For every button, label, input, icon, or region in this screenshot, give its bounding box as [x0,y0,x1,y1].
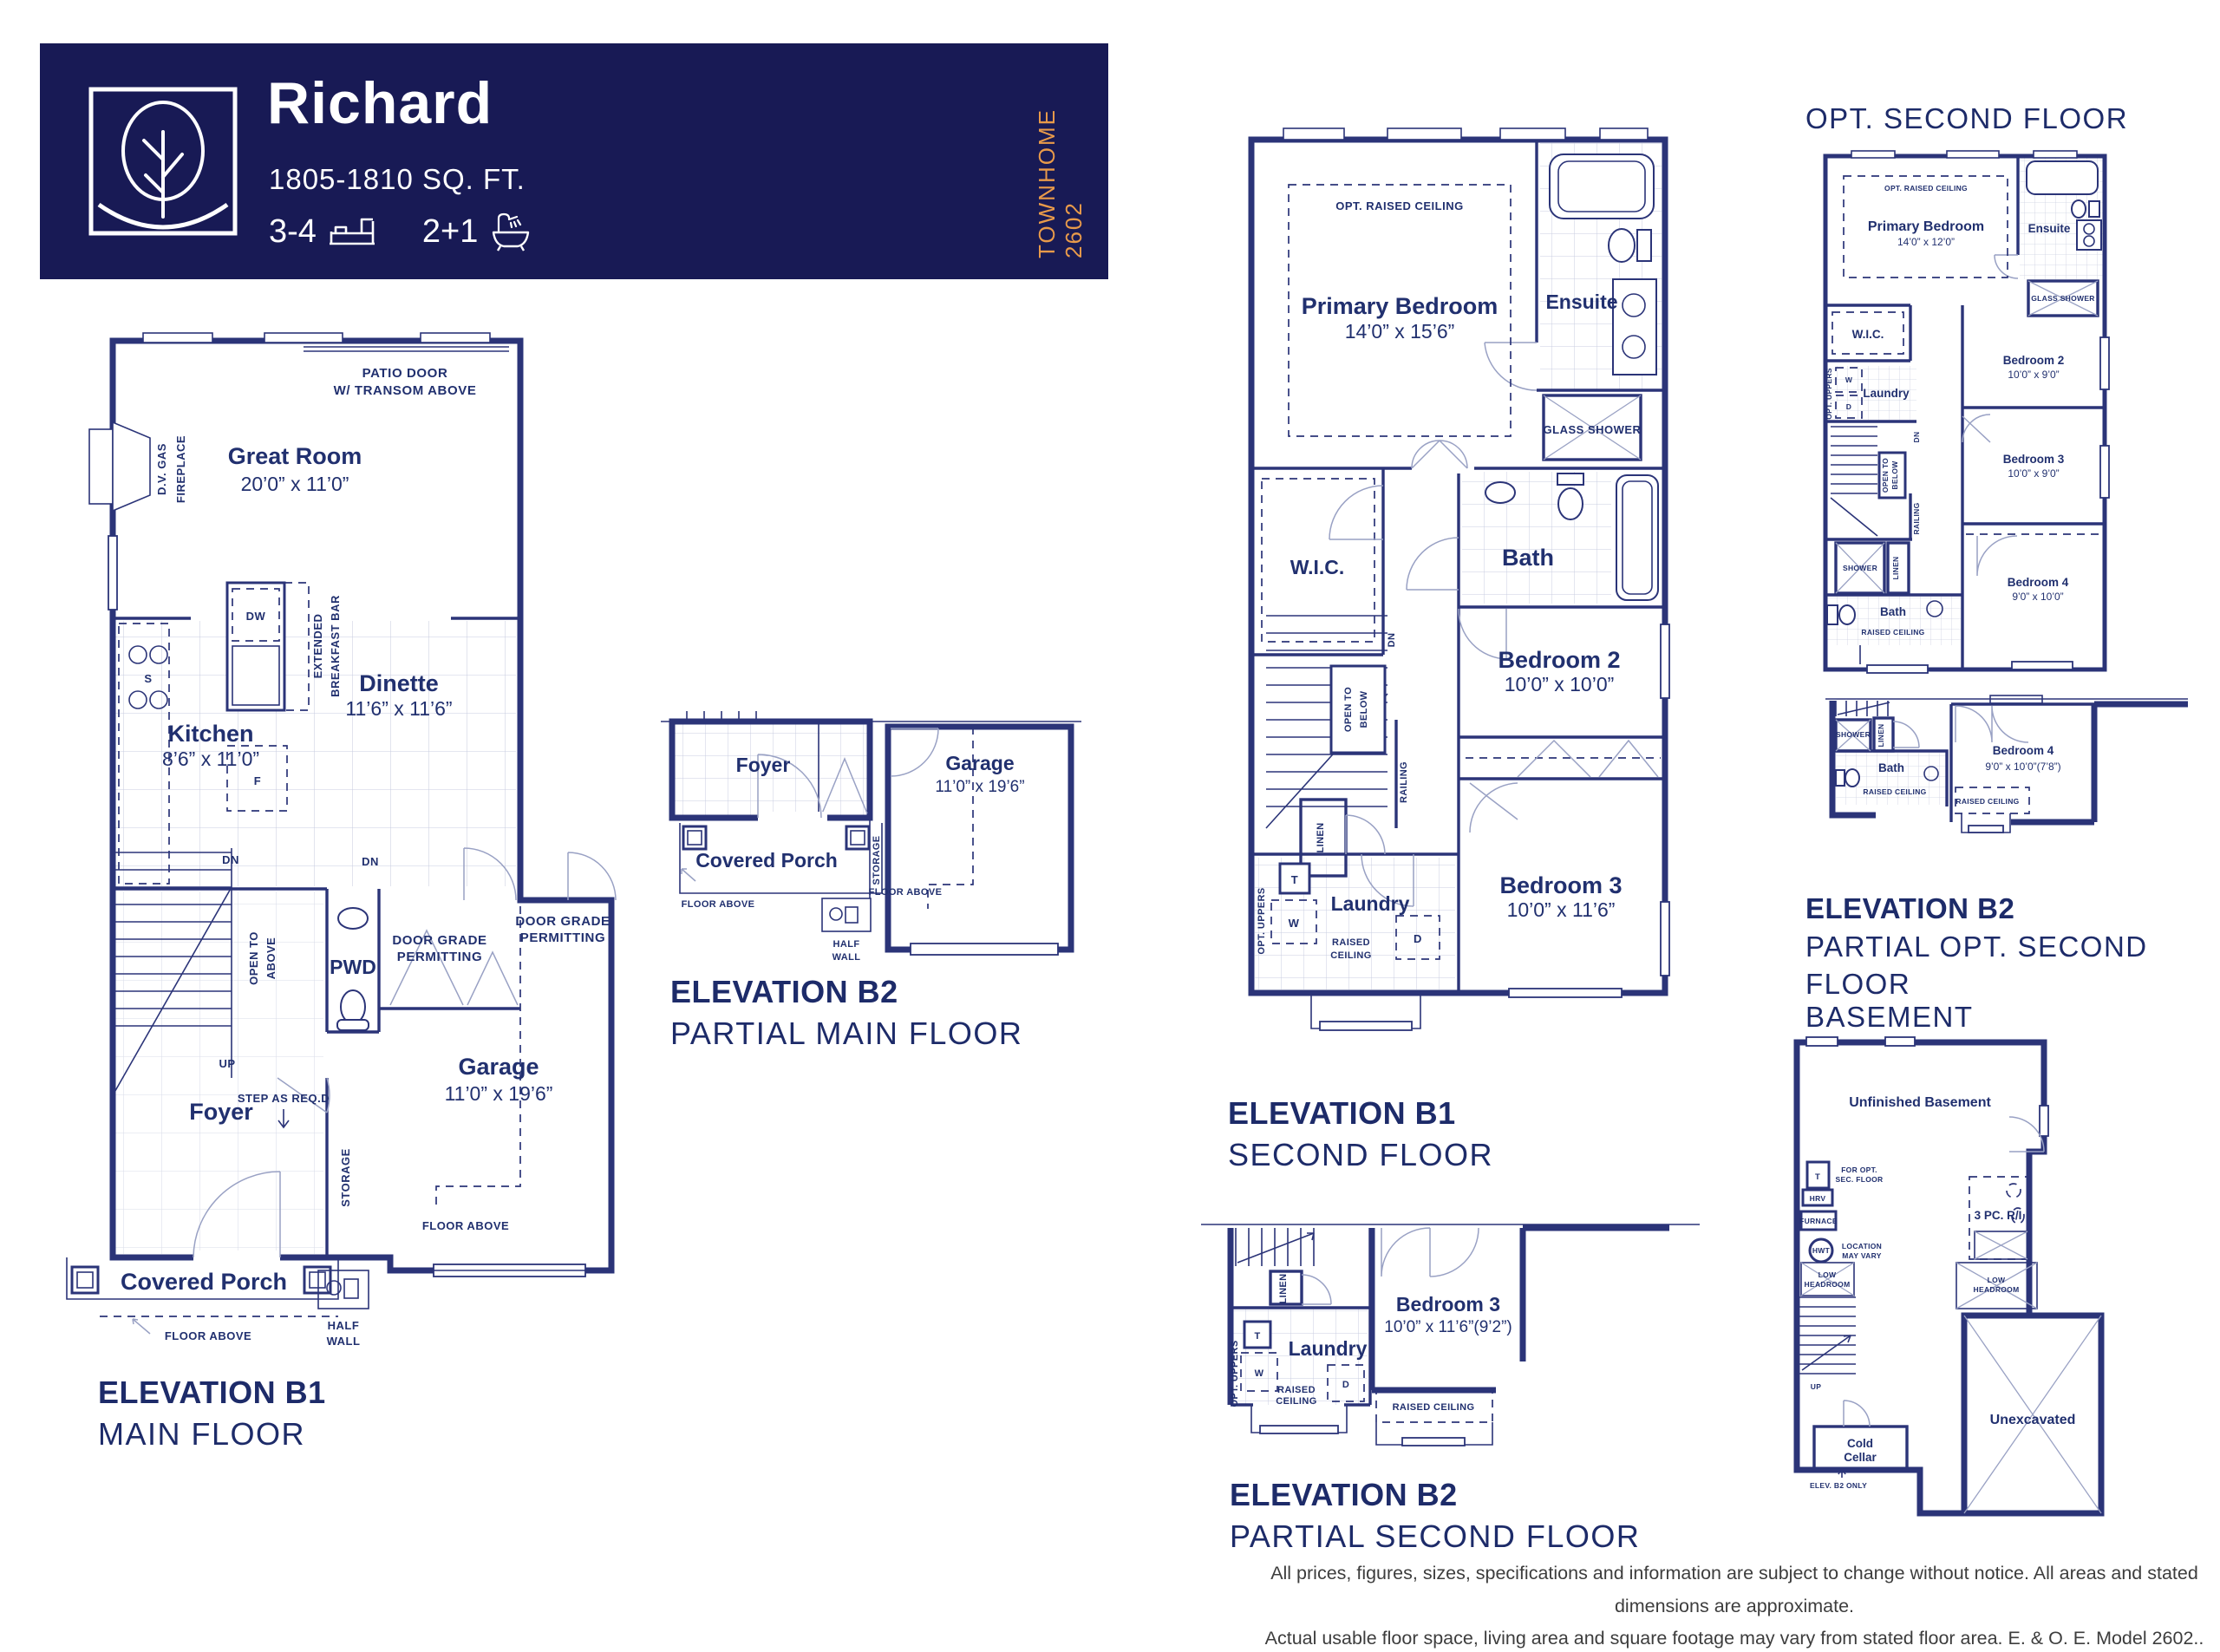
bed-closets [1962,415,2103,576]
porch-label: Covered Porch [121,1269,287,1295]
svg-text:10’0” x 11’6”(9’2”): 10’0” x 11’6”(9’2”) [1384,1318,1512,1336]
linen-label: LINEN [1877,724,1885,748]
disclaimer-line-2: Actual usable floor space, living area a… [1249,1623,2220,1652]
linen-label: LINEN [1891,557,1900,580]
location-label: LOCATION [1842,1242,1882,1250]
svg-text:HEADROOM: HEADROOM [1805,1280,1851,1289]
floorplan-sheet: Richard 1805-1810 SQ. FT. 3-4 2+1 TOWNHO… [0,0,2220,1652]
tree-logo-icon [88,87,238,236]
page-title: Richard [267,69,493,137]
top-windows [1851,151,2077,158]
washer-label: W [1289,917,1300,930]
plan-main-floor-b1: PATIO DOOR W/ TRANSOM ABOVE D.V. GAS FIR… [48,332,620,1351]
raised-ceiling-label: RAISED [1332,937,1370,948]
plan-partial-main-b2: Foyer Garage 11’0” x 19’6” Covered Porch… [661,711,1081,971]
garage-label: Garage [945,752,1014,774]
plan-opt-second-floor: OPT. RAISED CEILING Primary Bedroom 14’0… [1817,151,2116,676]
svg-text:BELOW: BELOW [1890,460,1899,490]
bed4-label: Bedroom 4 [1993,744,2054,757]
linen-label: LINEN [1316,823,1326,853]
open-above-label: OPEN TO [247,931,260,985]
side-door-swing [2009,1117,2044,1152]
laundry-label: Laundry [1331,892,1410,915]
ensuite-label: Ensuite [2028,222,2071,235]
plan-partial-opt-second-b2: SHOWER LINEN Bath RAISED CEILING Bedroom… [1825,694,2190,841]
svg-text:11’6” x 11’6”: 11’6” x 11’6” [345,697,452,720]
patio-note: PATIO DOOR [362,366,448,381]
dn-label-1: DN [222,853,239,866]
svg-text:9’0” x 10’0”: 9’0” x 10’0” [2012,591,2063,603]
up-label: UP [1811,1382,1821,1391]
up-label: UP [219,1057,235,1070]
stairs [1836,701,1890,716]
half-wall-label: HALF [833,939,860,950]
title-main-floor-b1: ELEVATION B1 MAIN FLOOR [98,1372,326,1454]
kitchen-label: Kitchen [167,721,253,747]
sqft-label: 1805-1810 SQ. FT. [269,163,526,196]
bed2-label: Bedroom 2 [2003,354,2065,367]
glass-shower-label: GLASS SHOWER [2031,294,2095,303]
header-banner: Richard 1805-1810 SQ. FT. 3-4 2+1 TOWNHO… [40,43,1108,279]
stairs-open-below [1266,616,1396,828]
svg-text:WALL: WALL [832,952,861,963]
raised-label: RAISED [1277,1385,1316,1395]
beds-spec: 3-4 [269,213,377,251]
wic-label: W.I.C. [1852,328,1884,341]
heading-basement: BASEMENT [1805,1001,1974,1034]
bath-label: Bath [1878,761,1904,774]
dryer-label: D [1414,932,1422,945]
title-partial-main-b2: ELEVATION B2 PARTIAL MAIN FLOOR [670,971,1022,1054]
dinette-label: Dinette [359,670,439,696]
primary-label: Primary Bedroom [1868,219,1984,234]
dn-label-2: DN [362,855,379,868]
dn-label: DN [1912,432,1921,443]
foyer-label: Foyer [189,1099,253,1125]
opt-ceiling-label: OPT. RAISED CEILING [1884,184,1968,193]
low-headroom-2-label: LOW [1988,1276,2006,1284]
unexcavated-label: Unexcavated [1990,1413,2076,1427]
low-headroom-1 [1801,1263,1854,1296]
uppers-label: OPT. UPPERS [1230,1340,1240,1407]
open-below-label: OPEN TO [1881,458,1890,493]
bed3-label: Bedroom 3 [2003,453,2065,466]
linen-label: LINEN [1278,1274,1289,1304]
laundry-label: Laundry [1863,387,1910,400]
door-grade-1: DOOR GRADE [392,933,486,948]
shower-label: SHOWER [1836,730,1871,739]
title-partial-second-b2: ELEVATION B2 PARTIAL SECOND FLOOR [1230,1474,1640,1557]
washer-label: W [1255,1368,1264,1379]
svg-text:CEILING: CEILING [1276,1396,1316,1407]
svg-text:SEC. FLOOR: SEC. FLOOR [1836,1175,1884,1184]
svg-text:10’0” x 9’0”: 10’0” x 9’0” [2008,467,2059,480]
bed3-label: Bedroom 3 [1499,872,1622,898]
plan-partial-second-b2: LINEN OPT. UPPERS T W D Laundry RAISED C… [1201,1221,1700,1459]
windows [1806,1037,2048,1136]
svg-text:BELOW: BELOW [1359,690,1369,728]
bed2-closets [1459,609,1661,833]
svg-text:ABOVE: ABOVE [264,937,277,980]
garage-label: Garage [458,1054,539,1080]
foyer-label: Foyer [736,754,791,776]
fireplace [89,422,150,511]
unfinished-label: Unfinished Basement [1849,1095,1991,1110]
baths-count: 2+1 [422,213,478,251]
bed2-label: Bedroom 2 [1498,647,1620,673]
svg-text:14’0” x 12’0”: 14’0” x 12’0” [1897,236,1955,248]
railing-label: RAILING [1399,761,1409,803]
bath-tile [1462,472,1611,604]
bath-label: Bath [1502,545,1554,571]
hwt-label: HWT [1812,1246,1831,1255]
heading-opt-second-floor: OPT. SECOND FLOOR [1805,102,2128,135]
stairs [1799,1297,1856,1374]
door-grade-2: DOOR GRADE [515,914,610,929]
half-wall-box [822,898,871,931]
foyer-tile [115,891,323,1254]
dn-label: DN [1387,633,1397,648]
bed4-label: Bedroom 4 [2008,576,2069,589]
railing-label: RAILING [1912,502,1921,534]
svg-text:BREAKFAST BAR: BREAKFAST BAR [329,595,342,697]
svg-text:14’0” x 15’6”: 14’0” x 15’6” [1345,320,1455,343]
pwd-label: PWD [330,956,376,978]
bath-icon [488,212,532,251]
exterior-walls [1797,1042,2101,1513]
svg-text:Cellar: Cellar [1844,1451,1877,1464]
top-windows [143,333,509,351]
opt-ceiling-label: OPT. RAISED CEILING [1335,199,1463,212]
svg-text:CEILING: CEILING [1330,950,1371,961]
svg-text:PERMITTING: PERMITTING [520,930,606,945]
dryer-label: D [1342,1380,1349,1390]
raised-label: RAISED CEILING [1861,628,1924,637]
bed3-label: Bedroom 3 [1396,1293,1500,1316]
floor-above-2: FLOOR ABOVE [422,1219,509,1232]
half-wall-label: HALF [328,1319,360,1332]
primary-label: Primary Bedroom [1302,293,1498,319]
laundry-label: Laundry [1289,1337,1368,1360]
bath-label: Bath [1880,605,1906,618]
three-pc-label: 3 PC. R/I [1975,1209,2022,1222]
glass-shower-label: GLASS SHOWER [1544,423,1642,436]
low-headroom-1-label: LOW [1818,1270,1837,1279]
dw-label: DW [246,610,266,623]
wic-label: W.I.C. [1290,556,1345,578]
storage-label: STORAGE [339,1148,352,1207]
furnace-label: FURNACE [1799,1217,1838,1225]
svg-text:10’0” x 11’6”: 10’0” x 11’6” [1507,898,1616,921]
sink-label: S [144,672,152,685]
stairs [1236,1228,1314,1266]
uppers-label: OPT. UPPERS [1257,887,1267,954]
svg-text:W/ TRANSOM ABOVE: W/ TRANSOM ABOVE [334,383,477,398]
baths-spec: 2+1 [422,212,532,251]
svg-text:20’0” x 11’0”: 20’0” x 11’0” [241,473,349,495]
open-below-label: OPEN TO [1343,687,1354,732]
shower-label: SHOWER [1843,564,1877,572]
svg-text:10’0” x 10’0”: 10’0” x 10’0” [1505,673,1615,695]
svg-text:PERMITTING: PERMITTING [397,950,483,964]
townhome-number-label: TOWNHOME 2602 [1034,64,1087,258]
cold-cellar-label: Cold [1847,1437,1873,1450]
svg-text:11’0” x 19’6”: 11’0” x 19’6” [445,1082,553,1105]
primary-door [1412,441,1467,473]
floor-above-1: FLOOR ABOVE [165,1329,251,1342]
svg-text:MAY VARY: MAY VARY [1842,1251,1881,1260]
plan-basement: Unfinished Basement T FOR OPT. SEC. FLOO… [1790,1032,2111,1552]
uppers-label: OPT. UPPERS [1825,368,1833,420]
plan-second-floor-b1: OPT. RAISED CEILING Primary Bedroom 14’0… [1214,121,1687,1093]
washer-label: W [1845,375,1853,384]
for-opt-label: FOR OPT. [1841,1166,1877,1174]
tub-label: T [1291,873,1298,886]
bed3-features [1376,1228,1492,1446]
disclaimer-line-1: All prices, figures, sizes, specificatio… [1249,1557,2220,1623]
svg-text:10’0” x 9’0”: 10’0” x 9’0” [2008,369,2059,381]
svg-text:HEADROOM: HEADROOM [1974,1285,2020,1294]
floor-above-1: FLOOR ABOVE [682,899,755,910]
svg-text:FIREPLACE: FIREPLACE [174,435,187,503]
fridge-label: F [254,774,261,787]
raised2-label: RAISED CEILING [1393,1402,1475,1413]
svg-text:11’0” x 19’6”: 11’0” x 19’6” [935,778,1024,796]
title-partial-opt-second-b2: ELEVATION B2 PARTIAL OPT. SECOND FLOOR [1805,890,2220,1003]
tub-label: T [1815,1172,1820,1182]
title-second-floor-b1: ELEVATION B1 SECOND FLOOR [1228,1093,1493,1175]
window-left [108,536,117,610]
hrv-label: HRV [1810,1194,1826,1203]
storage-label: STORAGE [872,836,882,885]
raised1-label: RAISED CEILING [1863,787,1926,796]
elev-note: ELEV. B2 ONLY [1810,1481,1867,1490]
fireplace-label: D.V. GAS [155,443,168,495]
bed-icon [327,214,377,249]
svg-text:9’0” x 10’0”(7’8”): 9’0” x 10’0”(7’8”) [1985,761,2060,773]
breakfast-bar-label: EXTENDED [311,614,324,679]
spec-row: 3-4 2+1 [269,212,532,251]
disclaimer: All prices, figures, sizes, specificatio… [1249,1557,2220,1652]
great-room-label: Great Room [228,443,362,469]
porch-label: Covered Porch [695,849,838,872]
svg-text:8’6” x 11’0”: 8’6” x 11’0” [162,748,259,770]
svg-text:WALL: WALL [327,1335,361,1348]
beds-count: 3-4 [269,213,317,251]
floor-above-2: FLOOR ABOVE [869,887,943,898]
dryer-label: D [1846,402,1851,411]
ensuite-label: Ensuite [1545,291,1617,313]
raised2-label: RAISED CEILING [1956,797,2019,806]
tub-label: T [1254,1331,1260,1342]
